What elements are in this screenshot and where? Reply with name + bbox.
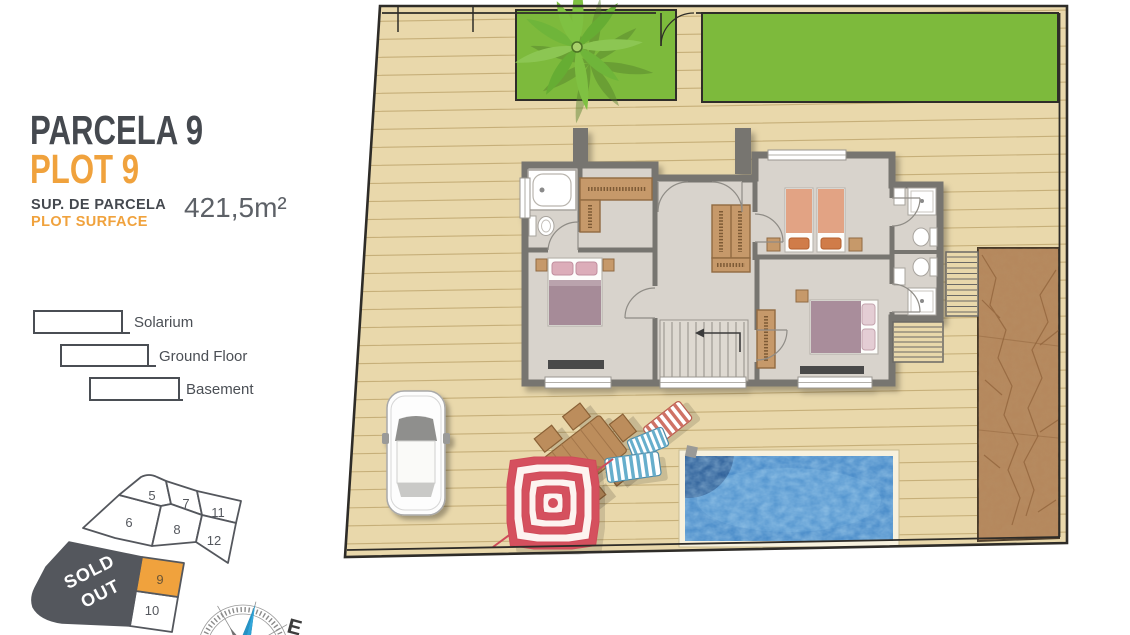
plot-number: 6	[125, 515, 132, 530]
page: 5 7 11 6 8 12 9 10 SOLD OUT	[0, 0, 1130, 635]
plot-number: 10	[145, 603, 159, 618]
legend-line	[60, 365, 156, 367]
surface-label-es: SUP. DE PARCELA	[31, 197, 166, 213]
internal-stairs	[660, 320, 748, 381]
plot-number: 12	[207, 533, 221, 548]
legend-line	[33, 332, 130, 334]
plot-title-en: PLOT 9	[30, 149, 139, 190]
compass-icon: E	[182, 589, 304, 635]
surface-label-en: PLOT SURFACE	[31, 214, 148, 230]
car	[382, 391, 450, 515]
dirt-area	[978, 248, 1059, 541]
legend-label: Ground Floor	[159, 348, 247, 365]
legend-label: Solarium	[134, 314, 193, 331]
chimney	[735, 128, 751, 174]
tv-console	[800, 366, 864, 374]
compass-east-label: E	[285, 615, 304, 635]
legend-box	[89, 377, 180, 401]
plot-number: 8	[173, 522, 180, 537]
plot-number: 7	[182, 496, 189, 511]
tv-console	[548, 360, 604, 369]
plot-number: 11	[211, 505, 225, 520]
lawn-right	[702, 13, 1058, 102]
surface-value: 421,5m²	[184, 192, 287, 224]
legend-line	[89, 399, 183, 401]
parasol	[493, 457, 613, 555]
plot-map: 5 7 11 6 8 12 9 10 SOLD OUT	[32, 475, 241, 632]
plot-number: 5	[148, 488, 155, 503]
wall-stub	[573, 128, 588, 168]
plot-number-highlighted: 9	[156, 572, 163, 587]
legend-box	[60, 344, 149, 367]
legend-box	[33, 310, 123, 334]
plot-title-es: PARCELA 9	[30, 110, 203, 151]
legend-label: Basement	[186, 381, 254, 398]
